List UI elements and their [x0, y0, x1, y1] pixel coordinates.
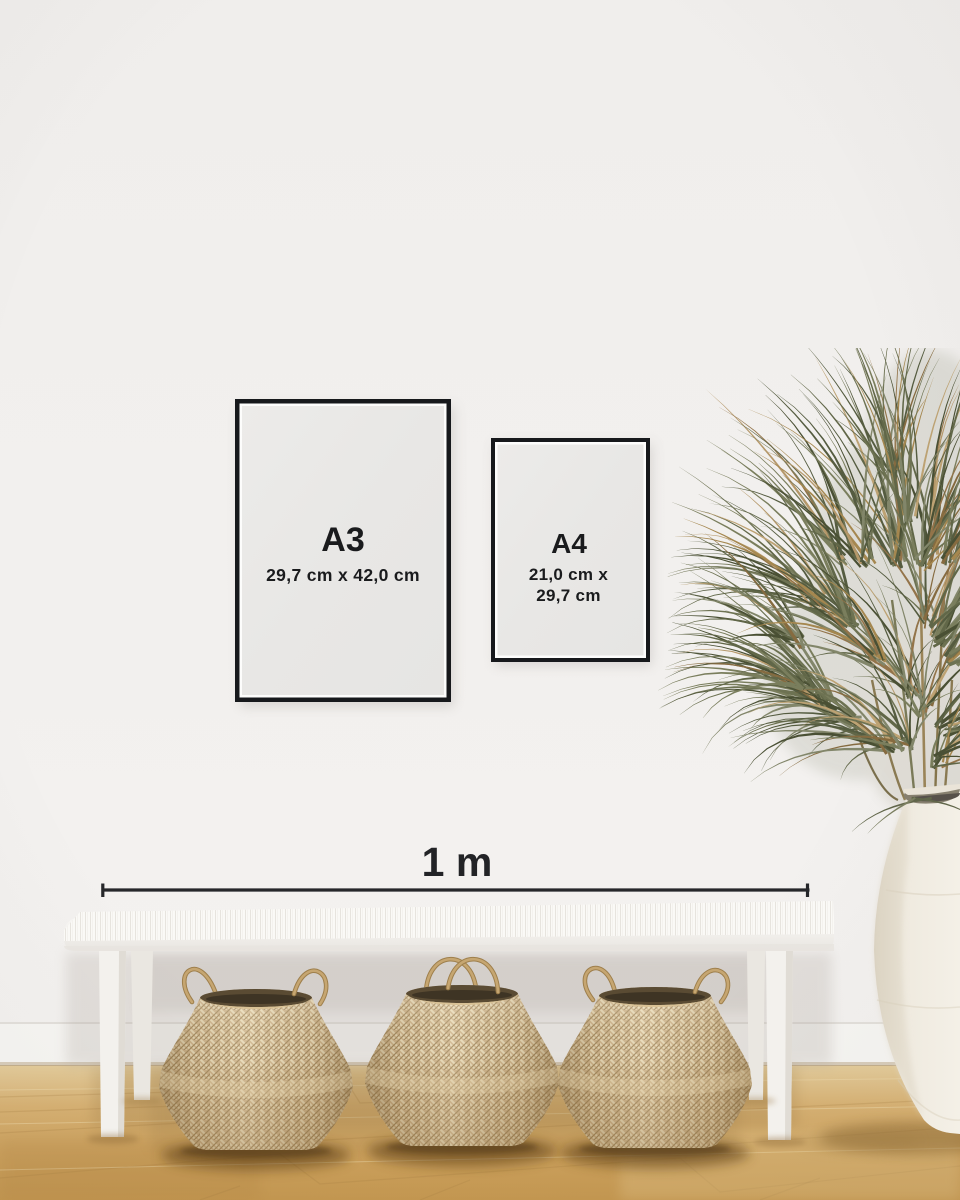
svg-text:A3: A3	[321, 521, 364, 559]
svg-text:21,0 cm x: 21,0 cm x	[529, 565, 609, 584]
svg-text:A4: A4	[551, 528, 587, 559]
svg-text:29,7 cm: 29,7 cm	[536, 586, 600, 605]
svg-text:29,7 cm x 42,0 cm: 29,7 cm x 42,0 cm	[266, 565, 420, 585]
svg-text:1 m: 1 m	[422, 839, 493, 885]
